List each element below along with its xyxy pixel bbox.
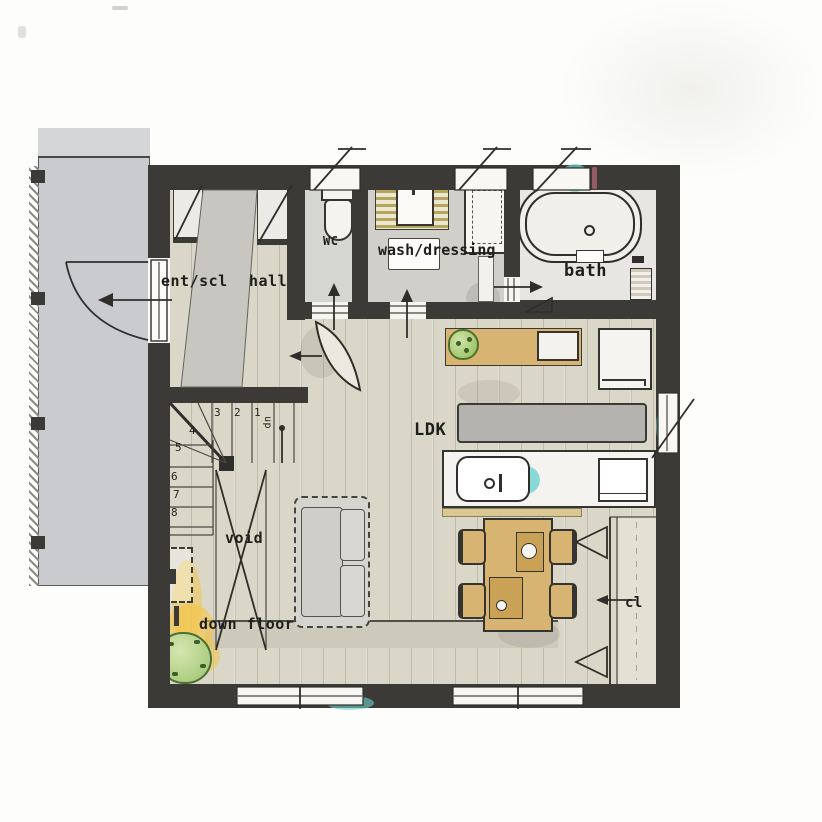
closet-folding-doors-icon [576, 517, 656, 684]
sliding-window-icon [453, 686, 583, 709]
stair-step-number: 3 [214, 406, 221, 419]
linework-overlay [0, 0, 822, 822]
stair-step-number: 5 [175, 441, 182, 454]
curved-door-icon [289, 322, 360, 390]
room-label-void: void [225, 529, 263, 547]
floor-plan-page: ent/scl hall WC wash/dressing bath LDK v… [0, 0, 822, 822]
bath-door-icon [494, 278, 552, 312]
stair-step-number: 8 [171, 506, 178, 519]
stair-step-number: 2 [234, 406, 241, 419]
room-label-ent-scl: ent/scl [161, 272, 228, 290]
high-window-icon [310, 147, 366, 190]
room-label-cl: cl [625, 595, 643, 611]
high-window-icon [533, 147, 591, 190]
stairs-up-label: up [262, 416, 273, 429]
side-window-icon [652, 393, 694, 458]
room-label-ldk: LDK [414, 420, 446, 440]
sliding-window-icon [237, 686, 363, 709]
high-window-icon [455, 147, 511, 190]
room-label-down-floor: down floor [199, 615, 294, 633]
wash-door-icon [390, 289, 426, 338]
stair-step-number: 6 [171, 470, 178, 483]
stairs [170, 403, 294, 535]
room-label-wc: WC [323, 234, 338, 248]
stair-step-number: 4 [189, 424, 196, 437]
room-label-wash-dressing: wash/dressing [378, 241, 495, 259]
stair-step-number: 1 [254, 406, 261, 419]
room-label-bath: bath [564, 261, 607, 281]
room-label-hall: hall [249, 272, 287, 290]
stair-step-number: 7 [173, 488, 180, 501]
